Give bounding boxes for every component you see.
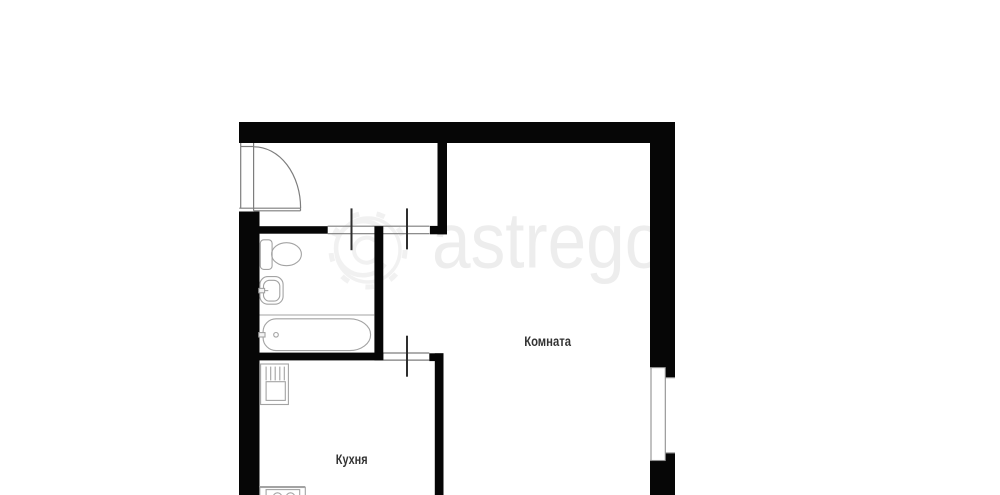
svg-text:Комната: Комната — [524, 334, 571, 349]
svg-text:astrego: astrego — [432, 196, 663, 284]
svg-text:Кухня: Кухня — [336, 452, 368, 467]
